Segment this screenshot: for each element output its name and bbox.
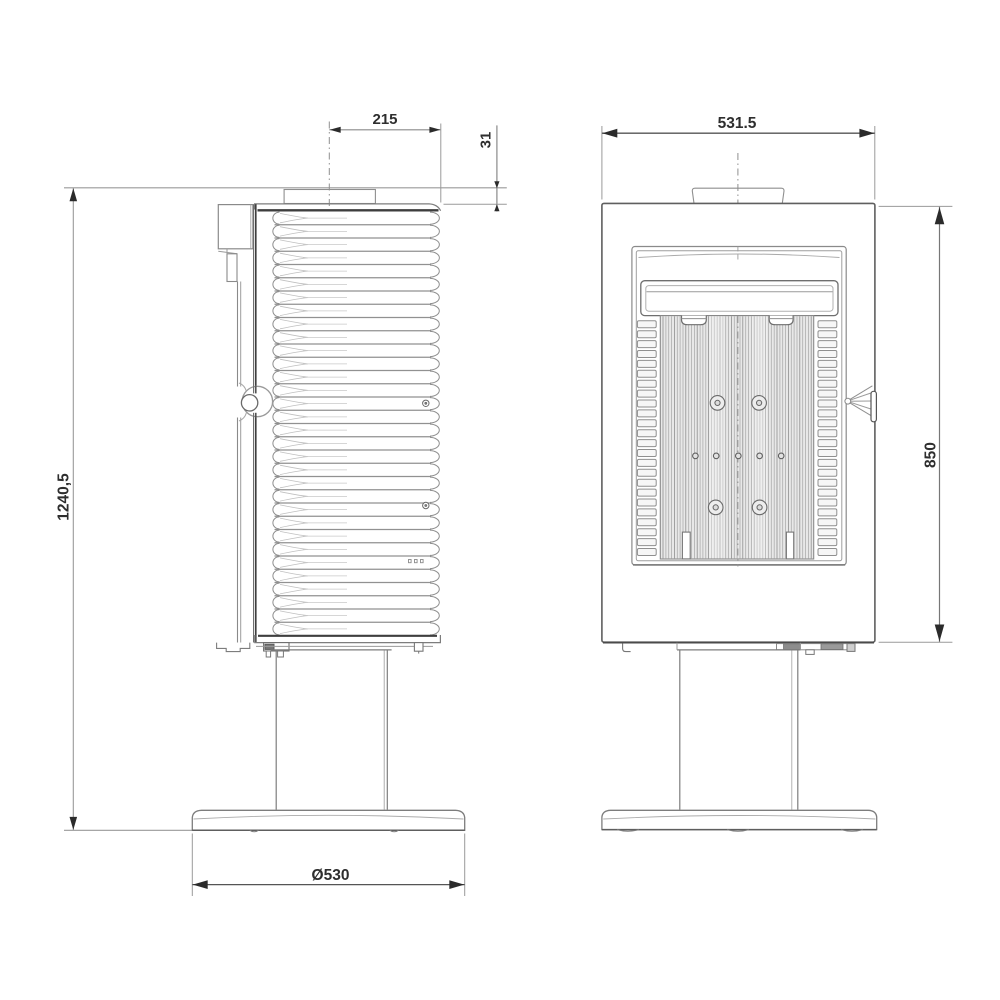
svg-text:850: 850 [923, 442, 940, 468]
svg-text:215: 215 [372, 111, 397, 128]
svg-text:531.5: 531.5 [718, 115, 757, 132]
svg-text:Ø530: Ø530 [312, 867, 350, 884]
svg-text:1240,5: 1240,5 [56, 473, 73, 521]
svg-text:31: 31 [478, 132, 495, 149]
